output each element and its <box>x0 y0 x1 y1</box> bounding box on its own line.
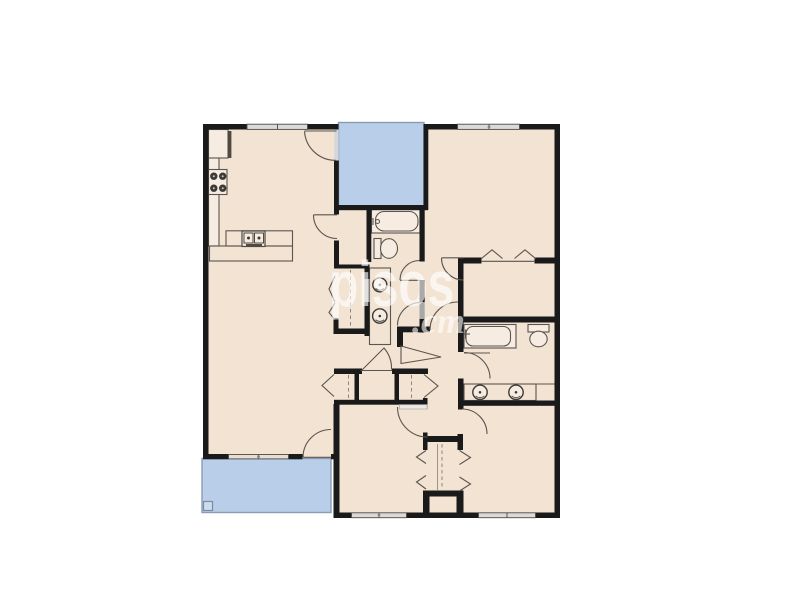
svg-text:.cm: .cm <box>412 301 465 341</box>
